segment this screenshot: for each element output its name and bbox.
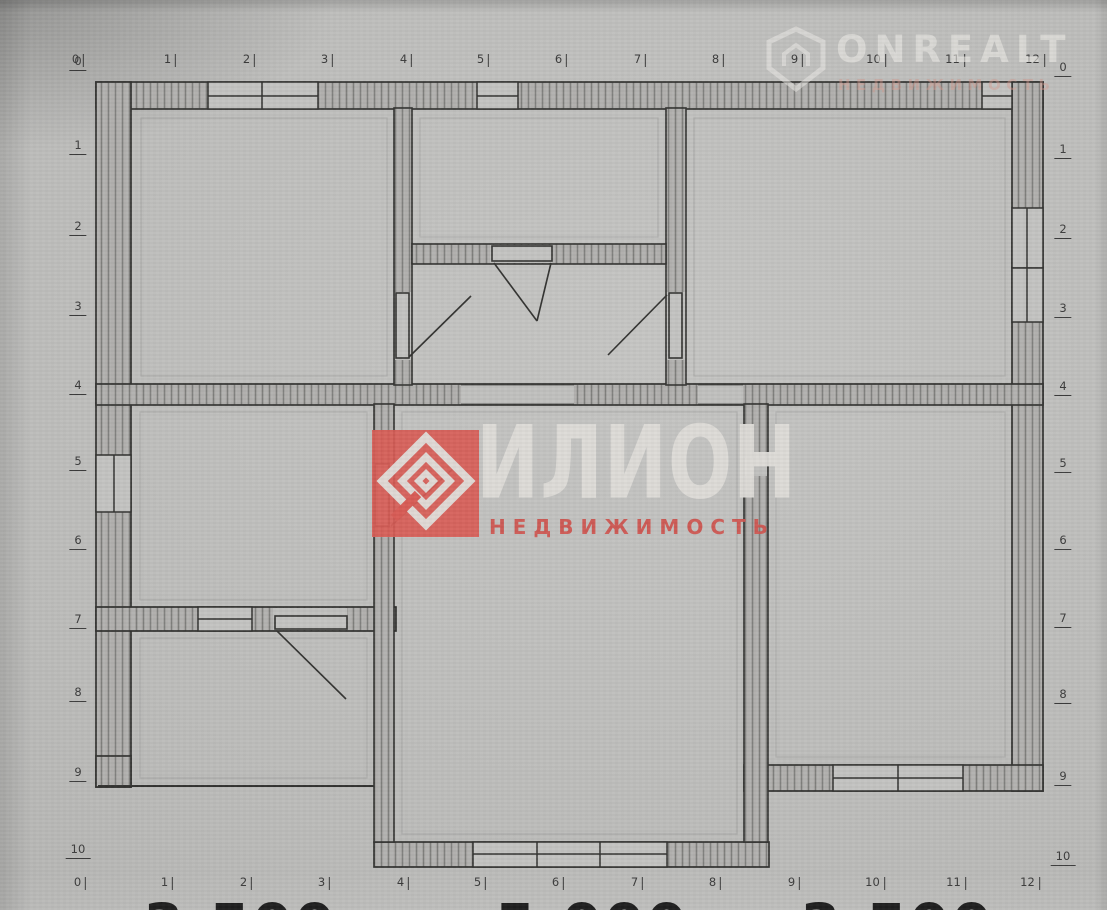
ruler-label-left-7: 7 (69, 614, 86, 629)
ruler-label-top-5: 5 (477, 54, 489, 67)
ruler-label-right-10: 10 (1051, 851, 1076, 866)
ruler-label-left-9: 9 (69, 767, 86, 782)
ruler-label-bottom-5: 5 (474, 877, 486, 890)
ruler-label-top-3: 3 (321, 54, 333, 67)
ruler-label-left-2: 2 (69, 221, 86, 236)
ilion-logo: ИЛИОН НЕДВИЖИМОСТЬ (372, 427, 757, 549)
onrealt-subtitle: НЕДВИЖИМОСТЬ (838, 76, 1055, 94)
dimension-label: 3.500 (800, 891, 993, 910)
dimension-label: 5.000 (495, 891, 688, 910)
ruler-label-left-8: 8 (69, 687, 86, 702)
ilion-title: ИЛИОН (476, 409, 694, 518)
ilion-diamond-icon (372, 430, 479, 537)
ruler-label-bottom-6: 6 (552, 877, 564, 890)
ruler-label-bottom-8: 8 (709, 877, 721, 890)
ruler-label-bottom-3: 3 (318, 877, 330, 890)
onrealt-house-icon (764, 26, 828, 92)
onrealt-watermark: ONREALT НЕДВИЖИМОСТЬ (758, 20, 1103, 106)
scanned-floor-plan: 0123456789101112 0123456789101112 012345… (0, 0, 1107, 910)
ruler-label-bottom-10: 10 (865, 877, 885, 890)
dimension-label: 3.500 (143, 891, 336, 910)
ruler-label-top-1: 1 (164, 54, 176, 67)
ruler-label-left-6: 6 (69, 535, 86, 550)
ruler-label-left-3: 3 (69, 301, 86, 316)
ruler-label-top-6: 6 (555, 54, 567, 67)
ruler-label-left-10: 10 (66, 844, 91, 859)
ruler-label-top-7: 7 (634, 54, 646, 67)
ruler-label-right-8: 8 (1054, 689, 1071, 704)
ruler-label-right-5: 5 (1054, 458, 1071, 473)
ruler-label-bottom-4: 4 (397, 877, 409, 890)
ruler-label-right-7: 7 (1054, 613, 1071, 628)
ruler-label-right-1: 1 (1054, 144, 1071, 159)
ruler-label-top-4: 4 (400, 54, 412, 67)
ilion-subtitle: НЕДВИЖИМОСТЬ (489, 515, 775, 539)
ruler-label-bottom-0: 0 (74, 877, 86, 890)
ruler-label-left-4: 4 (69, 380, 86, 395)
ruler-label-left-0: 0 (69, 56, 86, 71)
ruler-label-bottom-12: 12 (1020, 877, 1040, 890)
ruler-label-bottom-1: 1 (161, 877, 173, 890)
ruler-label-bottom-2: 2 (240, 877, 252, 890)
ruler-label-right-9: 9 (1054, 771, 1071, 786)
ruler-label-right-3: 3 (1054, 303, 1071, 318)
ruler-label-top-8: 8 (712, 54, 724, 67)
ruler-label-top-2: 2 (243, 54, 255, 67)
ruler-label-right-6: 6 (1054, 535, 1071, 550)
ruler-label-right-4: 4 (1054, 381, 1071, 396)
ruler-label-left-5: 5 (69, 456, 86, 471)
ruler-label-right-2: 2 (1054, 224, 1071, 239)
ruler-label-left-1: 1 (69, 140, 86, 155)
ruler-label-bottom-7: 7 (631, 877, 643, 890)
ruler-label-bottom-11: 11 (946, 877, 966, 890)
onrealt-title: ONREALT (836, 28, 1073, 71)
ruler-label-bottom-9: 9 (788, 877, 800, 890)
